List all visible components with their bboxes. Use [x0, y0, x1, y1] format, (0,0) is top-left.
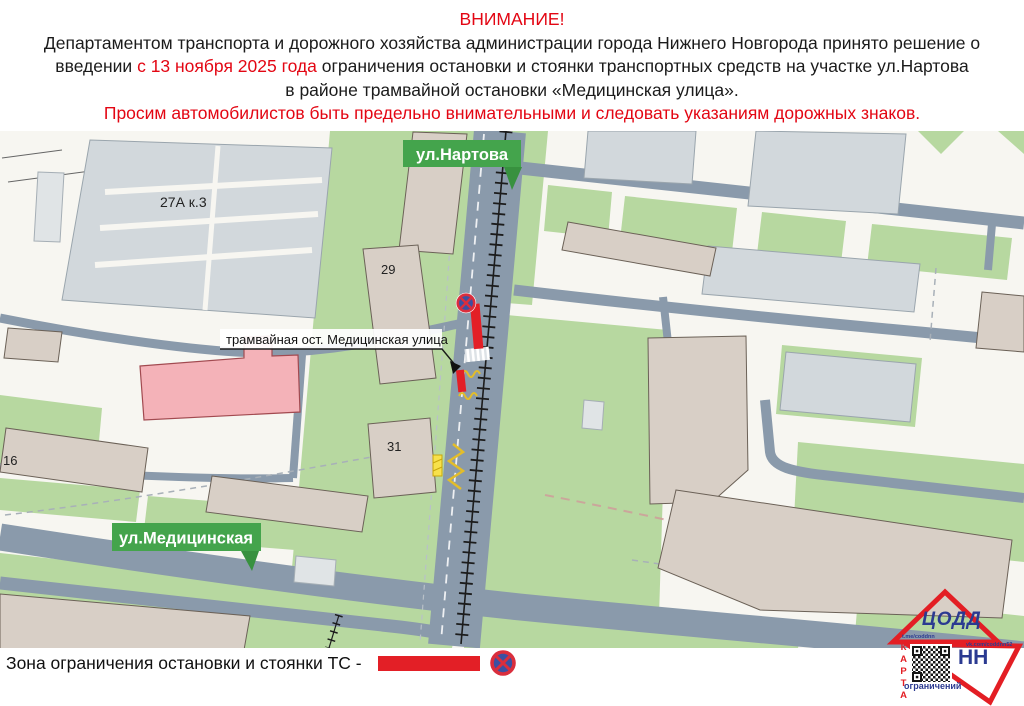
- codd-logo: ЦОДД НН КАРТА ограничений t.me/coddnn vk…: [878, 586, 1024, 706]
- line2-pre: введении: [55, 56, 137, 76]
- announcement-line-1: Департаментом транспорта и дорожного хоз…: [0, 32, 1024, 56]
- tram-stop-label: трамвайная ост. Медицинская улица: [226, 332, 449, 347]
- line2-post: ограничения остановки и стоянки транспор…: [317, 56, 969, 76]
- stop-platform-marker: [433, 455, 442, 476]
- crosswalk: [464, 347, 489, 362]
- warning-line: Просим автомобилистов быть предельно вни…: [0, 102, 1024, 126]
- street-label-medicinskaya: ул.Медицинская: [119, 530, 253, 548]
- date-highlight: с 13 ноября 2025 года: [137, 56, 317, 76]
- codd-map-word-suffix: ограничений: [904, 681, 961, 691]
- city-map: 27А к.3 29 31 16 трамвайная ост. Медицин…: [0, 131, 1024, 648]
- building-label-31: 31: [387, 439, 401, 454]
- attention-title: ВНИМАНИЕ!: [0, 8, 1024, 32]
- codd-city-abbr: НН: [958, 646, 988, 670]
- map-legend: Зона ограничения остановки и стоянки ТС …: [6, 649, 517, 677]
- announcement-poster: ВНИМАНИЕ! Департаментом транспорта и дор…: [0, 0, 1024, 706]
- legend-text: Зона ограничения остановки и стоянки ТС …: [6, 653, 362, 674]
- codd-org-name: ЦОДД: [922, 609, 982, 631]
- qr-code: [910, 644, 952, 684]
- announcement-header: ВНИМАНИЕ! Департаментом транспорта и дор…: [0, 0, 1024, 126]
- building-31: [368, 418, 436, 498]
- announcement-line-2: введении с 13 ноября 2025 года ограничен…: [0, 55, 1024, 79]
- street-label-nartova: ул.Нартова: [416, 146, 509, 164]
- building-label-27a: 27А к.3: [160, 194, 207, 210]
- announcement-line-3: в районе трамвайной остановки «Медицинск…: [0, 79, 1024, 103]
- vk-link: vk.com/coddnn52: [966, 642, 1012, 648]
- no-stopping-sign-icon: [456, 293, 476, 313]
- legend-restriction-bar: [378, 656, 480, 671]
- no-stopping-sign-icon: [489, 649, 517, 677]
- building-label-29: 29: [381, 262, 395, 277]
- telegram-link: t.me/coddnn: [902, 634, 935, 640]
- building-label-16: 16: [3, 453, 17, 468]
